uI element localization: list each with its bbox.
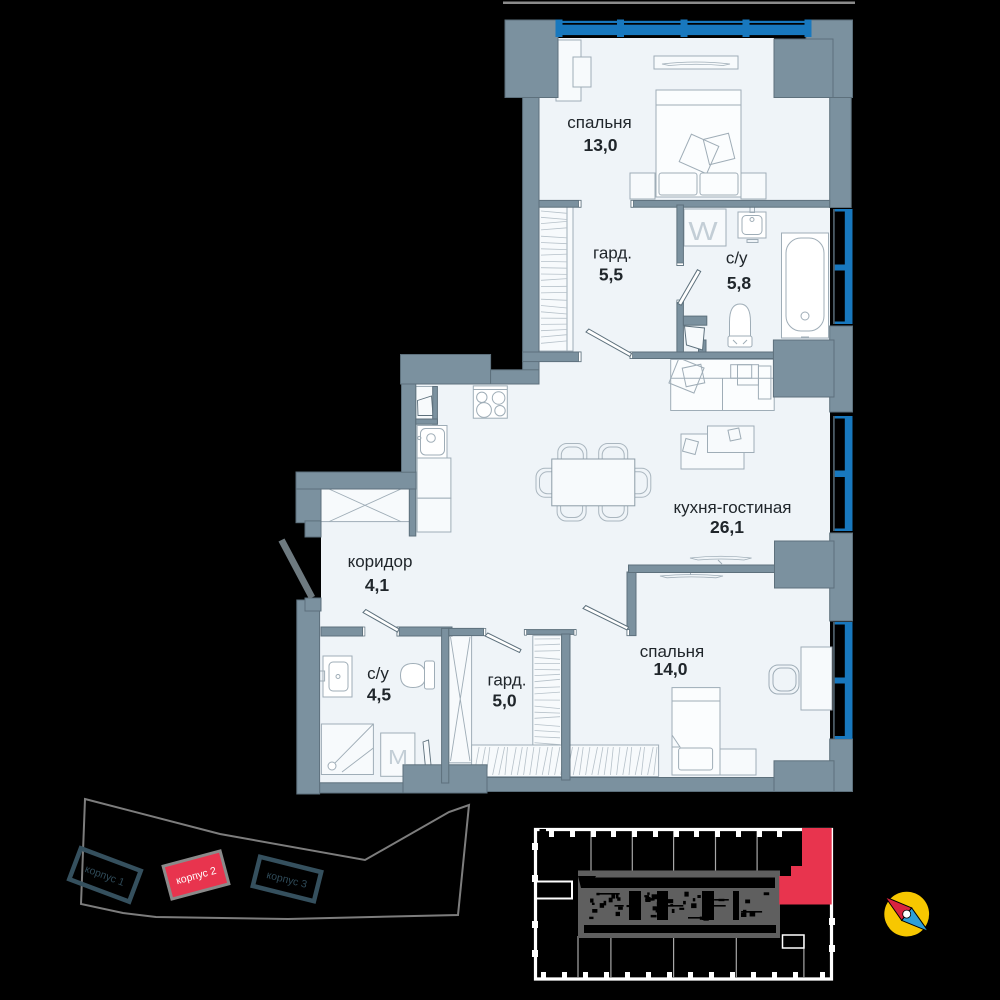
svg-text:с/у: с/у — [367, 664, 389, 683]
svg-text:коридор: коридор — [348, 552, 413, 571]
svg-text:5,0: 5,0 — [492, 691, 517, 711]
svg-text:13,0: 13,0 — [583, 135, 617, 155]
svg-text:4,5: 4,5 — [367, 685, 392, 705]
svg-text:5,8: 5,8 — [727, 273, 752, 293]
svg-text:с/у: с/у — [726, 249, 748, 268]
svg-text:спальня: спальня — [567, 113, 632, 132]
svg-text:5,5: 5,5 — [599, 265, 624, 285]
svg-text:26,1: 26,1 — [710, 517, 744, 537]
svg-text:14,0: 14,0 — [653, 659, 687, 679]
svg-text:4,1: 4,1 — [365, 575, 390, 595]
svg-text:гард.: гард. — [488, 671, 527, 690]
svg-text:гард.: гард. — [593, 244, 632, 263]
svg-text:W: W — [688, 217, 718, 246]
svg-text:кухня-гостиная: кухня-гостиная — [674, 498, 792, 517]
